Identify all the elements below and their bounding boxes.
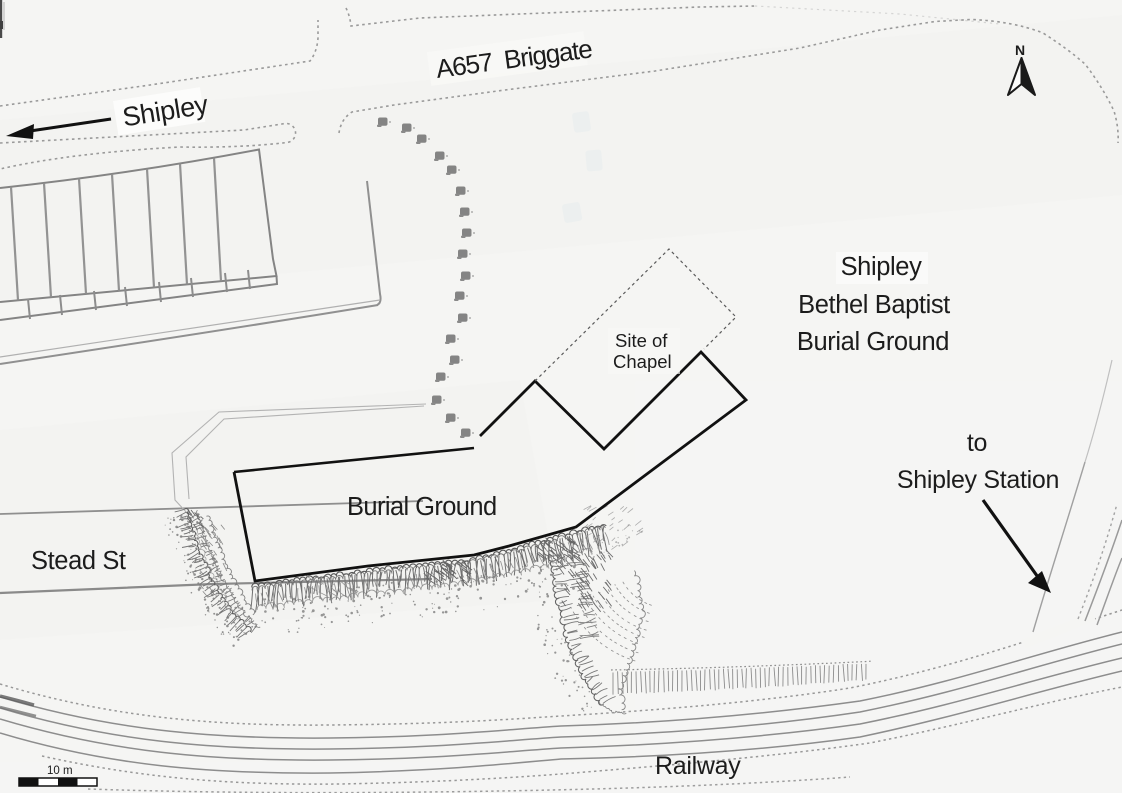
svg-text:Chapel: Chapel xyxy=(613,351,672,372)
svg-text:Burial Ground: Burial Ground xyxy=(797,328,949,356)
svg-text:Stead St: Stead St xyxy=(31,547,126,575)
svg-text:N: N xyxy=(1015,42,1025,58)
svg-text:10 m: 10 m xyxy=(47,765,73,777)
svg-text:Site of: Site of xyxy=(615,330,668,351)
svg-text:Shipley Station: Shipley Station xyxy=(897,466,1059,494)
svg-text:Railway: Railway xyxy=(655,752,741,780)
svg-text:Bethel Baptist: Bethel Baptist xyxy=(798,291,950,319)
svg-text:Shipley: Shipley xyxy=(841,253,922,281)
svg-text:to: to xyxy=(967,429,987,457)
svg-text:Burial Ground: Burial Ground xyxy=(347,493,497,521)
